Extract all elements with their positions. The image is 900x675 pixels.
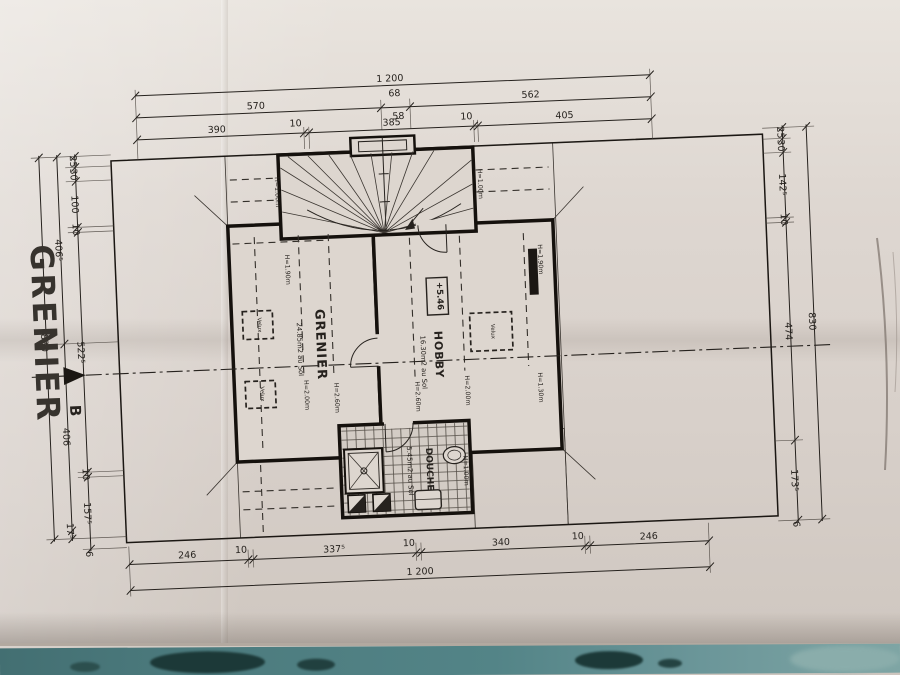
elevation-marker: +5.46 — [426, 277, 448, 315]
hobby-name: HOBBY — [431, 331, 446, 379]
dim: 340 — [492, 537, 511, 549]
velux-label: Velux — [256, 317, 263, 333]
dim: 522⁵ — [74, 341, 86, 364]
floor-plan-drawing: Velux Velux Velux +5.46 GRENIER 24.85m2 … — [0, 5, 872, 648]
dim: 405 — [555, 110, 574, 122]
stair-h-right: H=1.00m — [476, 169, 484, 199]
grenier-h260: H=2.60m — [332, 383, 340, 413]
dim: 570 — [247, 101, 266, 113]
dim: 157⁵ — [81, 502, 93, 525]
dim: 246 — [640, 531, 659, 543]
dim: 246 — [178, 550, 197, 562]
dim: 390 — [207, 124, 226, 136]
table-blotch — [150, 651, 265, 674]
douche-name: DOUCHE — [423, 448, 435, 491]
stair-h-left: H=1.00m — [273, 177, 281, 207]
table-blotch — [658, 659, 682, 668]
dim: 562 — [521, 89, 540, 101]
dim: 10 — [778, 213, 789, 226]
velux-label: Velux — [489, 324, 496, 340]
dim: 100 — [68, 195, 80, 214]
douche-h: H=1.00m — [461, 455, 469, 485]
dim: 6 — [83, 551, 94, 557]
dim: 406 — [60, 428, 72, 447]
dim: 142⁵ — [776, 173, 788, 196]
elevation-value: +5.46 — [434, 282, 445, 311]
hobby-h260: H=2.60m — [413, 381, 421, 411]
dim: 10 — [235, 545, 248, 556]
velux-label: Velux — [258, 386, 265, 402]
dim: 337⁵ — [323, 544, 346, 556]
table-surface — [0, 644, 900, 675]
sheet-title: GRENIER — [22, 244, 67, 424]
dim-bottom-overall: 1 200 — [406, 566, 434, 578]
dim: 173⁵ — [788, 469, 800, 492]
dim: 30 — [775, 139, 786, 152]
section-label: B — [66, 405, 84, 417]
hobby-h130: H=1.30m — [536, 372, 544, 402]
photo-of-floor-plan: Velux Velux Velux +5.46 GRENIER 24.85m2 … — [0, 0, 900, 675]
dim: 30 — [67, 168, 78, 181]
grenier-hwall: H=1.90m — [283, 255, 291, 285]
dim-right-overall: 830 — [806, 312, 818, 331]
dim: 25 — [774, 126, 785, 139]
dim: 68 — [388, 88, 401, 99]
dim: 10 — [70, 223, 81, 236]
dim: 17⁵ — [64, 523, 76, 540]
paper-bottom-shadow — [0, 612, 900, 644]
dim: 10 — [460, 111, 473, 122]
dim: 385 — [382, 117, 401, 129]
dim: 474 — [782, 322, 794, 341]
dim: 10 — [289, 118, 302, 129]
dim: 10 — [403, 538, 416, 549]
right-dimension-lines: 25 30 142⁵ 10 474 173⁵ 6 830 — [762, 122, 831, 528]
grenier-h200: H=2.00m — [302, 380, 310, 410]
table-highlight — [790, 646, 900, 673]
table-blotch — [297, 659, 335, 671]
dim: 10 — [80, 468, 91, 481]
hobby-hwall: H=1.90m — [536, 244, 544, 274]
dim: 10 — [571, 531, 584, 542]
table-blotch — [575, 651, 643, 669]
dim-top-overall: 1 200 — [376, 73, 404, 85]
table-blotch — [70, 662, 100, 672]
hobby-h200: H=2.00m — [463, 375, 471, 405]
dim: 6 — [790, 521, 801, 527]
dim: 25 — [67, 155, 78, 168]
bottom-dimension-lines: 246 10 337⁵ 10 340 10 246 1 200 — [125, 523, 715, 597]
grenier-name: GRENIER — [311, 309, 329, 381]
